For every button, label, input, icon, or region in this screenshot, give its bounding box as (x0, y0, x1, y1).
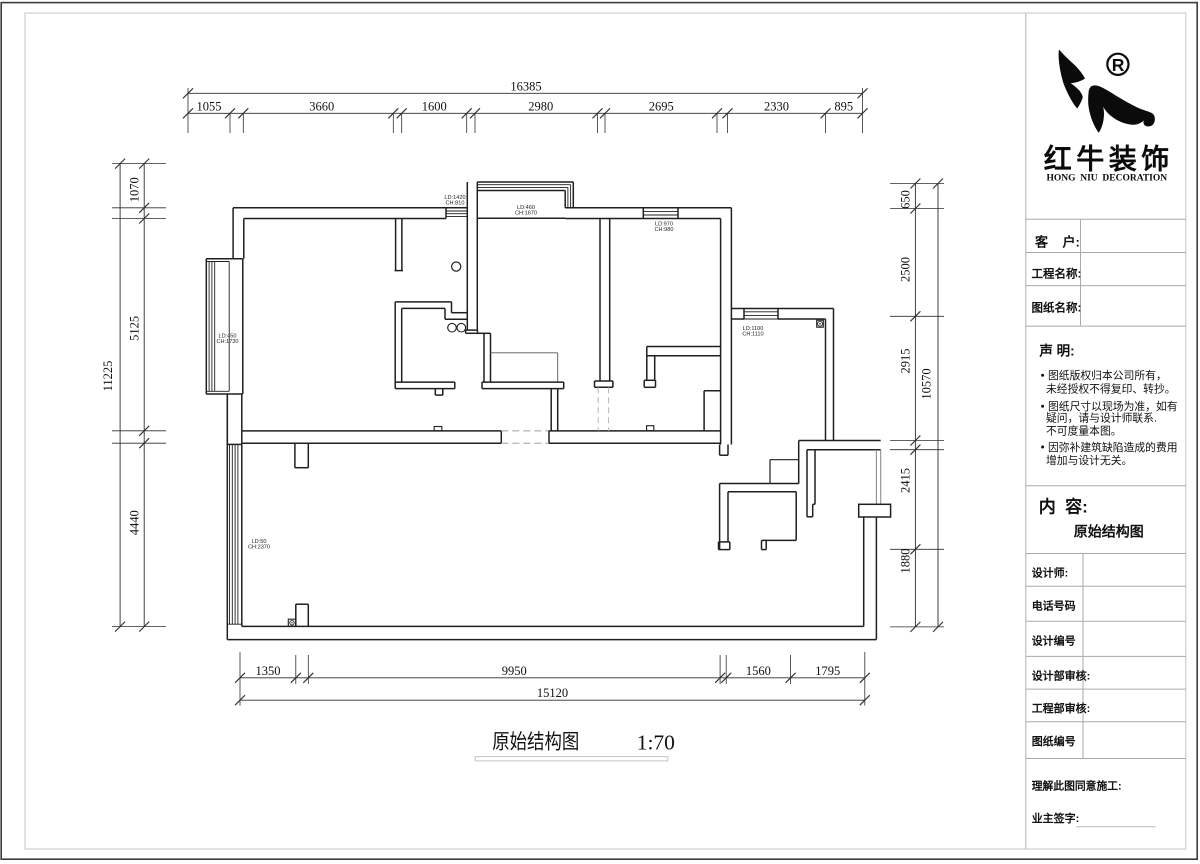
svg-text:1600: 1600 (422, 99, 447, 113)
svg-text:原始结构图: 原始结构图 (1074, 524, 1144, 540)
svg-text:CH:2370: CH:2370 (248, 545, 270, 551)
svg-text:2980: 2980 (528, 99, 553, 113)
svg-text:工程名称:: 工程名称: (1032, 267, 1082, 281)
svg-text:设计编号: 设计编号 (1032, 634, 1076, 648)
svg-text:CH:1110: CH:1110 (742, 332, 763, 338)
svg-text:9950: 9950 (502, 664, 527, 678)
svg-text:CH:810: CH:810 (446, 201, 465, 207)
svg-text:不可度量本图。: 不可度量本图。 (1046, 424, 1122, 438)
svg-text:16385: 16385 (510, 79, 541, 93)
svg-text:11225: 11225 (101, 361, 115, 392)
svg-text:CH:980: CH:980 (655, 227, 674, 233)
svg-text:电话号码: 电话号码 (1032, 598, 1076, 612)
svg-text:工程部审核:: 工程部审核: (1032, 701, 1091, 715)
svg-text:图纸版权归本公司所有，: 图纸版权归本公司所有， (1048, 368, 1167, 382)
svg-text:疑问，请与设计师联系.: 疑问，请与设计师联系. (1046, 412, 1157, 425)
svg-text:1880: 1880 (899, 549, 913, 574)
svg-text:4440: 4440 (128, 510, 142, 535)
svg-text:2915: 2915 (899, 349, 913, 374)
svg-text:15120: 15120 (537, 686, 568, 700)
svg-text:2695: 2695 (649, 99, 674, 113)
svg-text:设计部审核:: 设计部审核: (1032, 669, 1091, 683)
svg-text:10570: 10570 (920, 368, 934, 399)
svg-text:2330: 2330 (764, 99, 789, 113)
svg-text:1070: 1070 (128, 177, 142, 202)
svg-text:1560: 1560 (746, 664, 771, 678)
svg-text:1055: 1055 (197, 99, 222, 113)
svg-text:业主签字:: 业主签字: (1032, 811, 1080, 825)
svg-text:3660: 3660 (309, 99, 334, 113)
svg-text:1795: 1795 (815, 664, 840, 678)
svg-text:895: 895 (834, 99, 853, 113)
svg-text:内 容:: 内 容: (1039, 497, 1088, 517)
svg-text:CH:1670: CH:1670 (515, 211, 537, 217)
svg-text:5125: 5125 (128, 316, 142, 341)
svg-text:图纸尺寸以现场为准，如有: 图纸尺寸以现场为准，如有 (1048, 399, 1178, 413)
svg-text:1:70: 1:70 (637, 731, 675, 755)
svg-text:图纸编号: 图纸编号 (1032, 734, 1076, 748)
svg-text:设计师:: 设计师: (1032, 566, 1069, 580)
svg-text:理解此图同意施工:: 理解此图同意施工: (1032, 778, 1122, 792)
svg-text:未经授权不得复印、转抄。: 未经授权不得复印、转抄。 (1046, 382, 1176, 396)
svg-text:HONG NIU DECORATION: HONG NIU DECORATION (1046, 174, 1167, 184)
svg-text:2500: 2500 (899, 257, 913, 282)
svg-text:1350: 1350 (256, 664, 281, 678)
svg-text:650: 650 (899, 190, 913, 209)
svg-text:红牛装饰: 红牛装饰 (1044, 143, 1174, 175)
svg-text:CH:1730: CH:1730 (216, 339, 238, 345)
svg-text:2415: 2415 (899, 468, 913, 493)
svg-text:声 明:: 声 明: (1038, 343, 1074, 359)
svg-text:图纸名称:: 图纸名称: (1032, 301, 1082, 315)
svg-text:原始结构图: 原始结构图 (492, 730, 579, 754)
svg-text:R: R (1112, 55, 1125, 75)
svg-text:因弥补建筑缺陷造成的费用: 因弥补建筑缺陷造成的费用 (1048, 440, 1178, 454)
svg-text:客 户:: 客 户: (1035, 235, 1080, 250)
svg-text:增加与设计无关。: 增加与设计无关。 (1046, 453, 1132, 467)
